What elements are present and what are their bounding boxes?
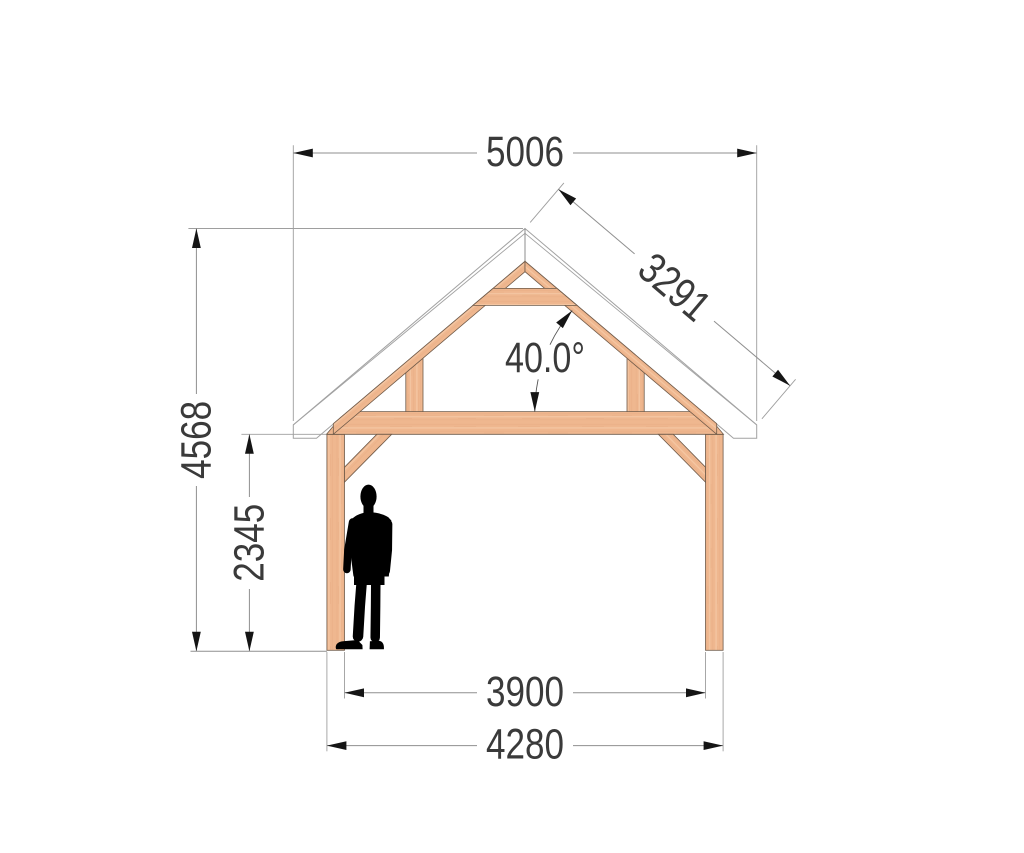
svg-text:4280: 4280 bbox=[486, 721, 564, 769]
svg-text:40.0°: 40.0° bbox=[505, 334, 585, 382]
svg-text:4568: 4568 bbox=[172, 401, 220, 479]
svg-text:2345: 2345 bbox=[225, 504, 273, 582]
svg-text:5006: 5006 bbox=[486, 128, 564, 176]
svg-text:3900: 3900 bbox=[486, 668, 564, 716]
